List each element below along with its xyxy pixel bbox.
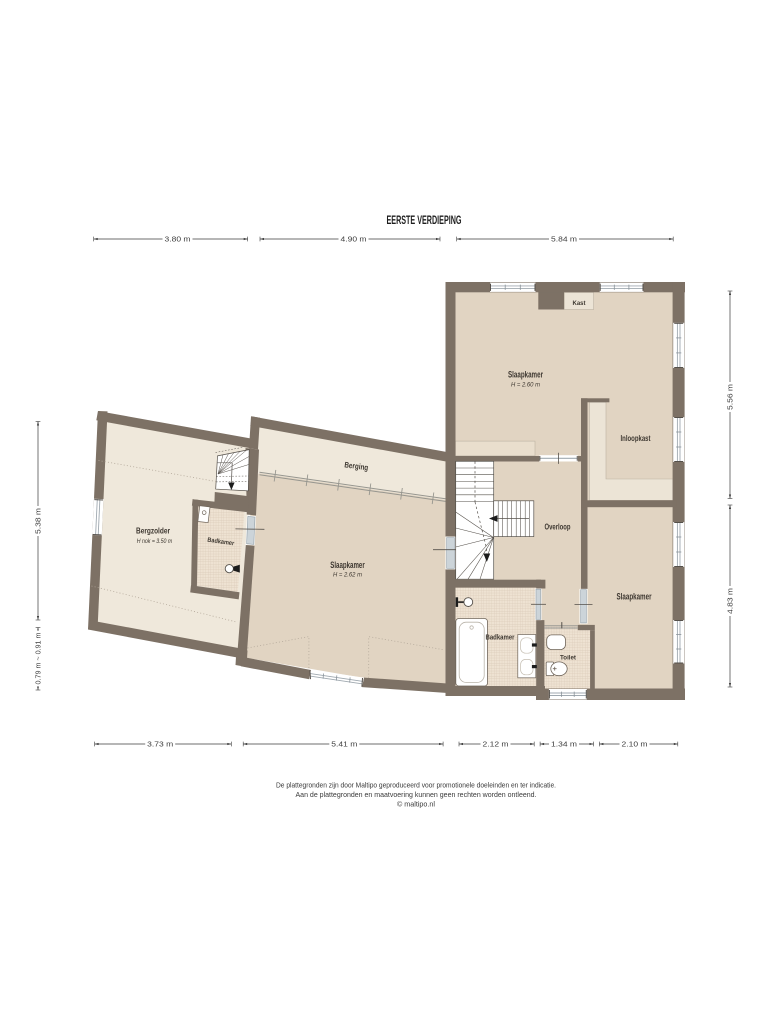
svg-text:2.12 m: 2.12 m (483, 740, 509, 749)
svg-text:5.38 m: 5.38 m (34, 508, 43, 534)
svg-text:Aan de plattegronden en maatvo: Aan de plattegronden en maatvoering kunn… (296, 790, 537, 799)
svg-text:Slaapkamer: Slaapkamer (330, 560, 365, 570)
svg-text:3.73 m: 3.73 m (147, 740, 173, 749)
svg-text:© maltipo.nl: © maltipo.nl (397, 799, 435, 808)
svg-text:Bergzolder: Bergzolder (136, 527, 170, 536)
svg-text:1.34 m: 1.34 m (551, 740, 577, 749)
svg-text:5.84 m: 5.84 m (551, 235, 577, 244)
svg-text:H nok = 3.50 m: H nok = 3.50 m (137, 538, 173, 545)
svg-text:5.56 m: 5.56 m (726, 384, 735, 410)
svg-text:Kast: Kast (573, 300, 587, 307)
svg-text:3.80 m: 3.80 m (165, 235, 191, 244)
svg-text:4.83 m: 4.83 m (726, 588, 735, 614)
svg-text:Badkamer: Badkamer (486, 634, 515, 641)
svg-text:H = 2.60 m: H = 2.60 m (511, 381, 541, 388)
svg-text:H = 2.62 m: H = 2.62 m (333, 571, 363, 578)
svg-text:EERSTE VERDIEPING: EERSTE VERDIEPING (387, 213, 462, 227)
svg-text:4.90 m: 4.90 m (341, 235, 367, 244)
svg-text:De plattegronden zijn door Mal: De plattegronden zijn door Maltipo gepro… (276, 781, 556, 790)
svg-text:Slaapkamer: Slaapkamer (617, 592, 652, 602)
svg-text:Inloopkast: Inloopkast (621, 434, 651, 443)
svg-text:Slaapkamer: Slaapkamer (508, 370, 543, 380)
svg-text:Toilet: Toilet (560, 655, 577, 662)
svg-text:0.79 m ~ 0.91 m: 0.79 m ~ 0.91 m (34, 633, 43, 685)
svg-text:5.41 m: 5.41 m (331, 740, 357, 749)
svg-text:2.10 m: 2.10 m (622, 740, 648, 749)
svg-text:Overloop: Overloop (545, 523, 571, 532)
